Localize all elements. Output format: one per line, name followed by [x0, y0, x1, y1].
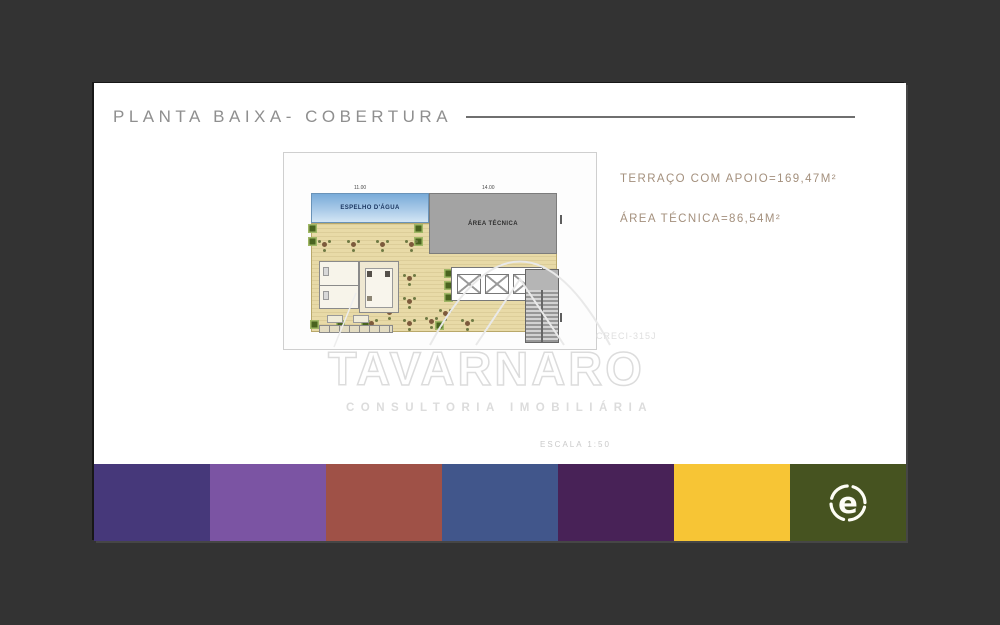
table — [404, 237, 418, 251]
palette-swatch-blue — [442, 464, 558, 541]
planter — [414, 224, 423, 233]
water-mirror-label: ESPELHO D'ÁGUA — [340, 205, 399, 211]
table — [402, 271, 416, 285]
table — [346, 237, 360, 251]
bar-kitchen — [359, 261, 399, 313]
stair-block — [525, 269, 559, 343]
dimension-tick — [560, 215, 562, 224]
e-logo-icon: e — [824, 479, 872, 527]
floor-plan: 11.00 14.00 ESPELHO D'ÁGUA ÁREA TÉCNICA — [283, 152, 597, 350]
planter — [308, 224, 317, 233]
table — [375, 237, 389, 251]
palette-swatch-purple — [210, 464, 326, 541]
palette-swatch-yellow — [674, 464, 790, 541]
elevator — [485, 274, 509, 294]
technical-area-label: ÁREA TÉCNICA=86,54M² — [620, 213, 837, 225]
table — [402, 316, 416, 330]
table — [460, 316, 474, 330]
watermark-brand: TAVARNARO — [328, 345, 645, 392]
slide-card: PLANTA BAIXA- COBERTURA TERRAÇO COM APOI… — [94, 83, 906, 541]
planter — [308, 237, 317, 246]
palette-swatch-olive: e — [790, 464, 906, 541]
elevator — [457, 274, 481, 294]
watermark-subtitle: CONSULTORIA IMOBILIÁRIA — [346, 402, 653, 414]
palette-swatch-indigo — [94, 464, 210, 541]
title-rule — [466, 116, 855, 118]
technical-area: ÁREA TÉCNICA — [429, 193, 557, 254]
dimension-water: 11.00 — [354, 185, 366, 191]
counters — [319, 311, 393, 333]
palette-strip: e — [94, 464, 906, 541]
e-logo-letter: e — [838, 486, 858, 520]
table — [402, 294, 416, 308]
dimension-tick — [560, 313, 562, 322]
page-title: PLANTA BAIXA- COBERTURA — [113, 107, 452, 127]
terrace-area-label: TERRAÇO COM APOIO=169,47M² — [620, 173, 837, 185]
palette-swatch-darkpurple — [558, 464, 674, 541]
water-mirror: ESPELHO D'ÁGUA — [311, 193, 429, 223]
table — [438, 306, 452, 320]
header: PLANTA BAIXA- COBERTURA — [113, 107, 855, 127]
palette-swatch-brick — [326, 464, 442, 541]
technical-area-plan-label: ÁREA TÉCNICA — [468, 221, 518, 227]
area-annotations: TERRAÇO COM APOIO=169,47M² ÁREA TÉCNICA=… — [620, 173, 837, 253]
table — [424, 314, 438, 328]
dimension-technical: 14.00 — [482, 185, 495, 191]
table — [317, 237, 331, 251]
restrooms — [319, 261, 359, 309]
watermark-creci: CRECI-315J — [596, 331, 657, 341]
planter — [310, 320, 319, 329]
scale-label: ESCALA 1:50 — [540, 440, 611, 449]
